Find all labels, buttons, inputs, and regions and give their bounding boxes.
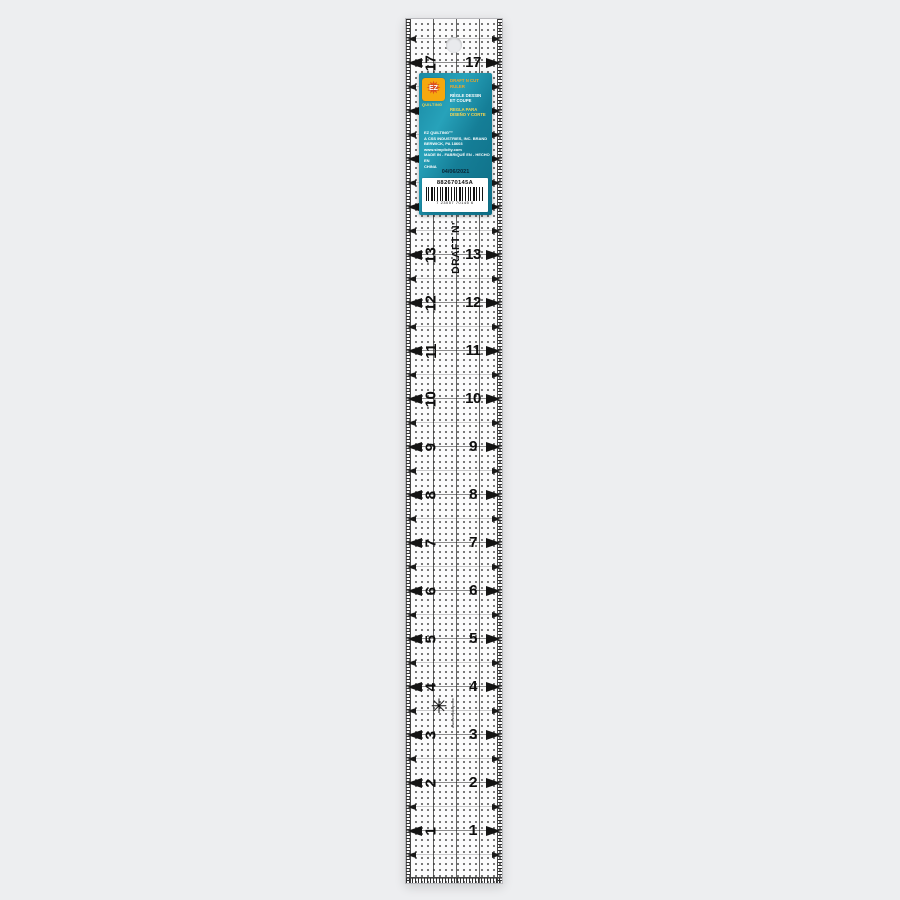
half-inch-mark-row [406,324,502,330]
product-title-en: DRAFT N CUT RULER [450,78,490,90]
half-inch-arrow-left-icon [407,420,416,426]
half-inch-arrow-left-icon [407,180,416,186]
inch-number-left: 6 [420,581,442,601]
inch-mark-row: 1212 [406,293,502,313]
half-inch-arrow-right-icon [492,660,501,666]
product-title-es-line2: DISEÑO Y CORTE [450,112,490,117]
inch-mark-row: 1717 [406,53,502,73]
half-inch-mark-row [406,564,502,570]
inch-arrow-right-icon [486,826,501,836]
inch-arrow-right-icon [486,298,501,308]
inch-number-left: 4 [420,677,442,697]
inch-number-left: 12 [420,293,442,313]
logo-monogram: EZ [422,85,445,92]
half-inch-arrow-left-icon [407,228,416,234]
half-inch-arrow-right-icon [492,708,501,714]
brand-name-label: QUILTING [422,103,448,107]
half-inch-arrow-right-icon [492,180,501,186]
half-inch-arrow-right-icon [492,852,501,858]
inch-number-right: 4 [461,677,485,697]
half-inch-arrow-right-icon [492,132,501,138]
inch-number-right: 1 [461,821,485,841]
inch-arrow-right-icon [486,682,501,692]
half-inch-arrow-left-icon [407,372,416,378]
half-inch-arrow-right-icon [492,36,501,42]
company-line: MADE IN - FABRIQUÉ EN - HECHO EN [424,152,490,163]
half-inch-arrow-left-icon [407,660,416,666]
half-inch-arrow-left-icon [407,324,416,330]
half-inch-arrow-right-icon [492,276,501,282]
half-inch-arrow-left-icon [407,852,416,858]
ruler-bottom-tick-strip [406,877,502,883]
half-inch-arrow-right-icon [492,612,501,618]
inch-mark-row: 1111 [406,341,502,361]
inch-number-left: 9 [420,437,442,457]
inch-number-left: 17 [420,53,442,73]
barcode-digits: 7 23057 70145 6 [422,201,488,205]
half-inch-arrow-left-icon [407,708,416,714]
half-inch-arrow-right-icon [492,420,501,426]
half-inch-mark-row [406,372,502,378]
inch-arrow-right-icon [486,442,501,452]
tag-header: ✹ EZ QUILTING DRAFT N CUT RULER RÈGLE DE… [422,78,490,118]
inch-number-right: 17 [461,53,485,73]
half-inch-arrow-right-icon [492,372,501,378]
inch-number-right: 10 [461,389,485,409]
inch-arrow-right-icon [486,346,501,356]
inch-arrow-right-icon [486,634,501,644]
inch-mark-row: 11 [406,821,502,841]
sku-number: 882670145A [422,178,488,186]
barcode-panel: 882670145A 7 23057 70145 6 [422,178,488,212]
half-inch-arrow-right-icon [492,516,501,522]
hang-tag: ✹ EZ QUILTING DRAFT N CUT RULER RÈGLE DE… [419,73,492,215]
half-inch-arrow-left-icon [407,756,416,762]
inch-number-left: 13 [420,245,442,265]
inch-mark-row: 66 [406,581,502,601]
half-inch-arrow-left-icon [407,132,416,138]
inch-arrow-right-icon [486,394,501,404]
half-inch-mark-row [406,612,502,618]
half-inch-arrow-right-icon [492,84,501,90]
inch-mark-row: 1010 [406,389,502,409]
inch-mark-row: 55 [406,629,502,649]
inch-arrow-right-icon [486,586,501,596]
half-inch-arrow-right-icon [492,228,501,234]
half-inch-arrow-left-icon [407,468,416,474]
inch-number-left: 2 [420,773,442,793]
inch-mark-row: 88 [406,485,502,505]
ruler-brand-vertical-text: DRAFT N' [448,221,464,275]
inch-mark-row: 77 [406,533,502,553]
inch-number-right: 8 [461,485,485,505]
inch-number-right: 11 [461,341,485,361]
half-inch-arrow-left-icon [407,564,416,570]
half-inch-mark-row [406,804,502,810]
half-inch-mark-row [406,852,502,858]
half-inch-mark-row [406,36,502,42]
inch-number-left: 10 [420,389,442,409]
inch-number-right: 5 [461,629,485,649]
half-inch-arrow-left-icon [407,36,416,42]
inch-number-left: 8 [420,485,442,505]
ez-star-icon: ✳ [427,695,451,719]
half-inch-arrow-left-icon [407,612,416,618]
inch-number-left: 3 [420,725,442,745]
inch-arrow-right-icon [486,730,501,740]
half-inch-arrow-left-icon [407,804,416,810]
half-inch-mark-row [406,276,502,282]
inch-number-right: 9 [461,437,485,457]
half-inch-arrow-right-icon [492,756,501,762]
half-inch-arrow-right-icon [492,324,501,330]
inch-number-right: 6 [461,581,485,601]
inch-number-left: 5 [420,629,442,649]
product-photo-backdrop: 1717161615151414131312121111101099887766… [0,0,900,900]
barcode-icon [426,187,484,201]
inch-mark-row: 22 [406,773,502,793]
half-inch-mark-row [406,468,502,474]
half-inch-arrow-right-icon [492,564,501,570]
ruler-website-vertical-text: www.simplicity.com [449,693,457,733]
inch-number-right: 2 [461,773,485,793]
half-inch-arrow-left-icon [407,516,416,522]
ez-quilting-logo: ✹ EZ [422,78,445,101]
inch-arrow-right-icon [486,250,501,260]
company-info-block: EZ QUILTING™ A CSS INDUSTRIES, INC. BRAN… [424,130,490,169]
inch-number-right: 13 [461,245,485,265]
inch-arrow-right-icon [486,58,501,68]
inch-number-left: 1 [420,821,442,841]
half-inch-arrow-left-icon [407,276,416,282]
half-inch-arrow-right-icon [492,468,501,474]
inch-arrow-right-icon [486,538,501,548]
inch-arrow-right-icon [486,490,501,500]
half-inch-mark-row [406,516,502,522]
date-stamp: 04/06/2021 [419,169,492,175]
inch-number-right: 3 [461,725,485,745]
inch-number-right: 7 [461,533,485,553]
half-inch-mark-row [406,420,502,426]
half-inch-arrow-right-icon [492,804,501,810]
inch-number-left: 11 [420,341,442,361]
half-inch-mark-row [406,756,502,762]
inch-number-right: 12 [461,293,485,313]
half-inch-mark-row [406,660,502,666]
half-inch-arrow-left-icon [407,84,416,90]
inch-number-left: 7 [420,533,442,553]
inch-arrow-right-icon [486,778,501,788]
inch-mark-row: 99 [406,437,502,457]
